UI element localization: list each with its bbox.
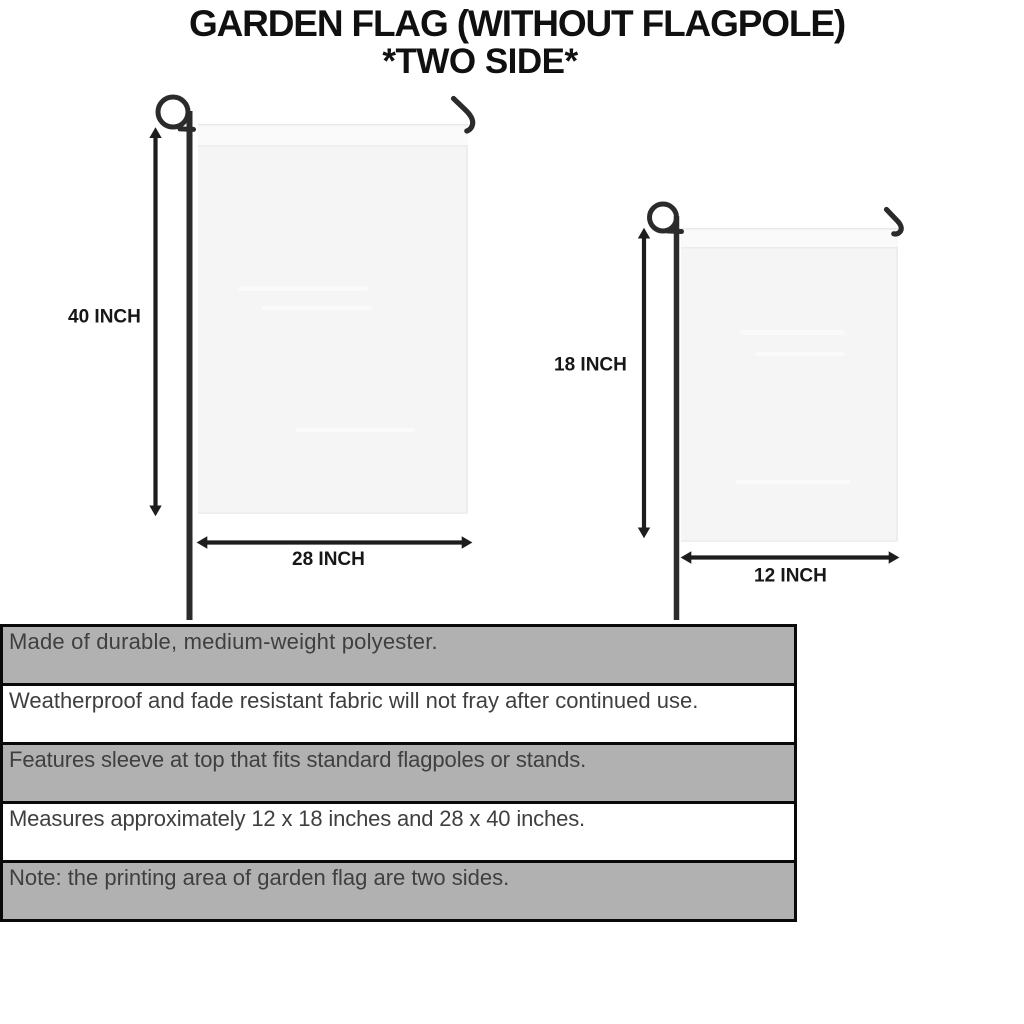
- svg-text:40 INCH: 40 INCH: [68, 307, 141, 328]
- svg-text:28 INCH: 28 INCH: [292, 549, 365, 570]
- svg-text:12 INCH: 12 INCH: [754, 566, 827, 587]
- svg-text:18 INCH: 18 INCH: [554, 355, 627, 376]
